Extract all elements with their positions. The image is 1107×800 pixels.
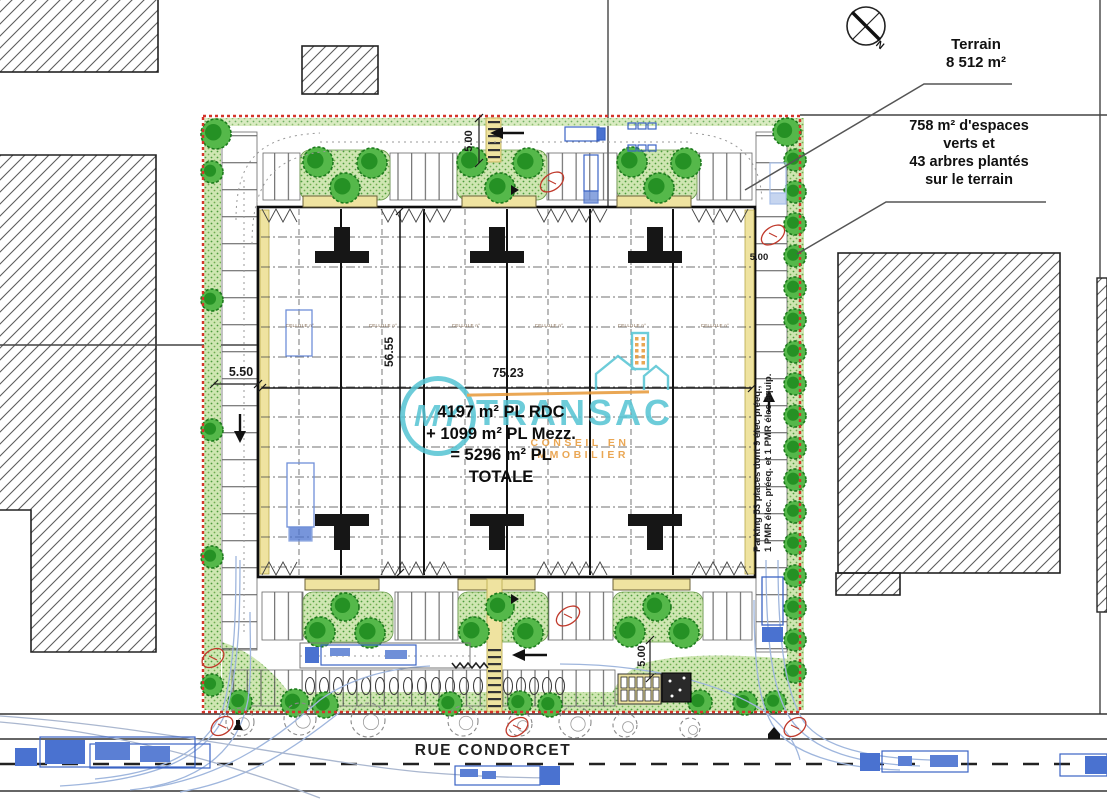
cell-label-3: CELLULE n° [449, 323, 483, 328]
street-name: RUE CONDORCET [408, 742, 578, 760]
terrain-label: Terrain [920, 36, 1032, 53]
dimension-top: 5.00 [463, 125, 475, 157]
dimension-bottom: 5.00 [636, 640, 648, 672]
area-line-total: = 5296 m² PL [391, 445, 611, 467]
green-space-note-line2: verts et [886, 136, 1052, 153]
dimension-building-height: 56.55 [382, 334, 396, 370]
area-line-rdc: 4197 m² PL RDC [391, 402, 611, 424]
waste-area [662, 673, 691, 702]
building-area-summary: 4197 m² PL RDC + 1099 m² PL Mezz. = 5296… [391, 402, 611, 488]
area-line-totale: TOTALE [391, 467, 611, 489]
parking-note-line2: 1 PMR élec. préeq. et 1 PMR élec équip. [763, 222, 774, 552]
site-plan-page: Terrain 8 512 m² 758 m² d'espaces verts … [0, 0, 1107, 800]
cell-label-4: CELLULE n° [532, 323, 566, 328]
cell-label-1: CELLULE n° [283, 323, 317, 328]
green-space-note-line1: 758 m² d'espaces [886, 118, 1052, 135]
area-line-mezz: + 1099 m² PL Mezz. [391, 424, 611, 446]
cell-label-5: CELLULE n° [615, 323, 649, 328]
cell-label-6: CELLULE n° [698, 323, 732, 328]
parking-count-note: Parking 53 places dont 9 élec préeq., 1 … [752, 222, 774, 552]
green-space-note-line3: 43 arbres plantés [886, 154, 1052, 171]
parking-note-line1: Parking 53 places dont 9 élec préeq., [752, 222, 763, 552]
dimension-left: 5.50 [222, 365, 260, 379]
green-space-note-line4: sur le terrain [886, 172, 1052, 189]
cell-label-2: CELLULE n° [366, 323, 400, 328]
dimension-building-width: 75.23 [487, 366, 529, 380]
terrain-area-value: 8 512 m² [920, 54, 1032, 71]
